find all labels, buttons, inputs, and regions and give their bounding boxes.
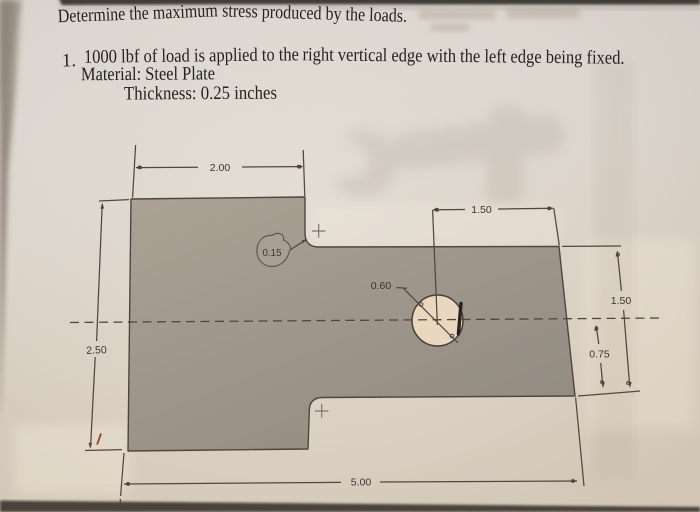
svg-text:1.50: 1.50 bbox=[471, 204, 492, 216]
svg-text:2.50: 2.50 bbox=[86, 344, 107, 357]
svg-text:0.75: 0.75 bbox=[589, 349, 610, 361]
svg-text:0.15: 0.15 bbox=[263, 248, 282, 259]
svg-text:1.50: 1.50 bbox=[611, 295, 632, 307]
svg-text:right vertical edge with the l: right vertical edge with the left edge b… bbox=[302, 44, 624, 68]
svg-text:Material: Steel Plate: Material: Steel Plate bbox=[81, 63, 215, 85]
svg-text:2.00: 2.00 bbox=[210, 162, 231, 174]
svg-text:5.00: 5.00 bbox=[351, 477, 372, 489]
svg-text:0.60: 0.60 bbox=[371, 280, 392, 292]
svg-text:1.: 1. bbox=[62, 50, 77, 71]
svg-text:Thickness: 0.25 inches: Thickness: 0.25 inches bbox=[124, 83, 277, 105]
